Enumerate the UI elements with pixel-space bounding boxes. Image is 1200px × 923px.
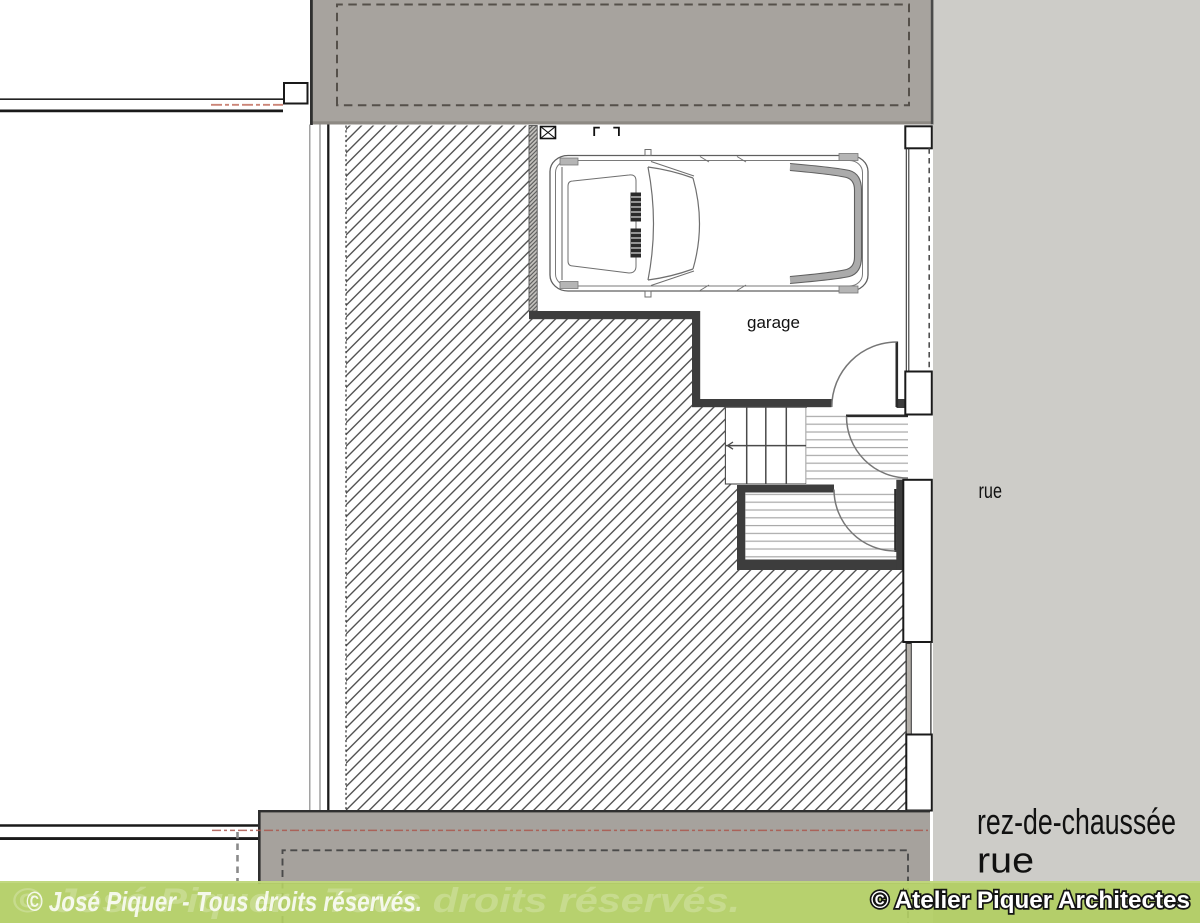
svg-text:rue: rue <box>979 480 1003 503</box>
svg-text:rez-de-chaussée: rez-de-chaussée <box>977 801 1176 842</box>
svg-text:rue: rue <box>977 840 1034 881</box>
svg-text:© José Piquer - Tous droits ré: © José Piquer - Tous droits réservés. <box>26 886 422 917</box>
svg-text:garage: garage <box>747 313 800 332</box>
svg-text:© Atelier Piquer Architectes: © Atelier Piquer Architectes <box>871 887 1190 914</box>
